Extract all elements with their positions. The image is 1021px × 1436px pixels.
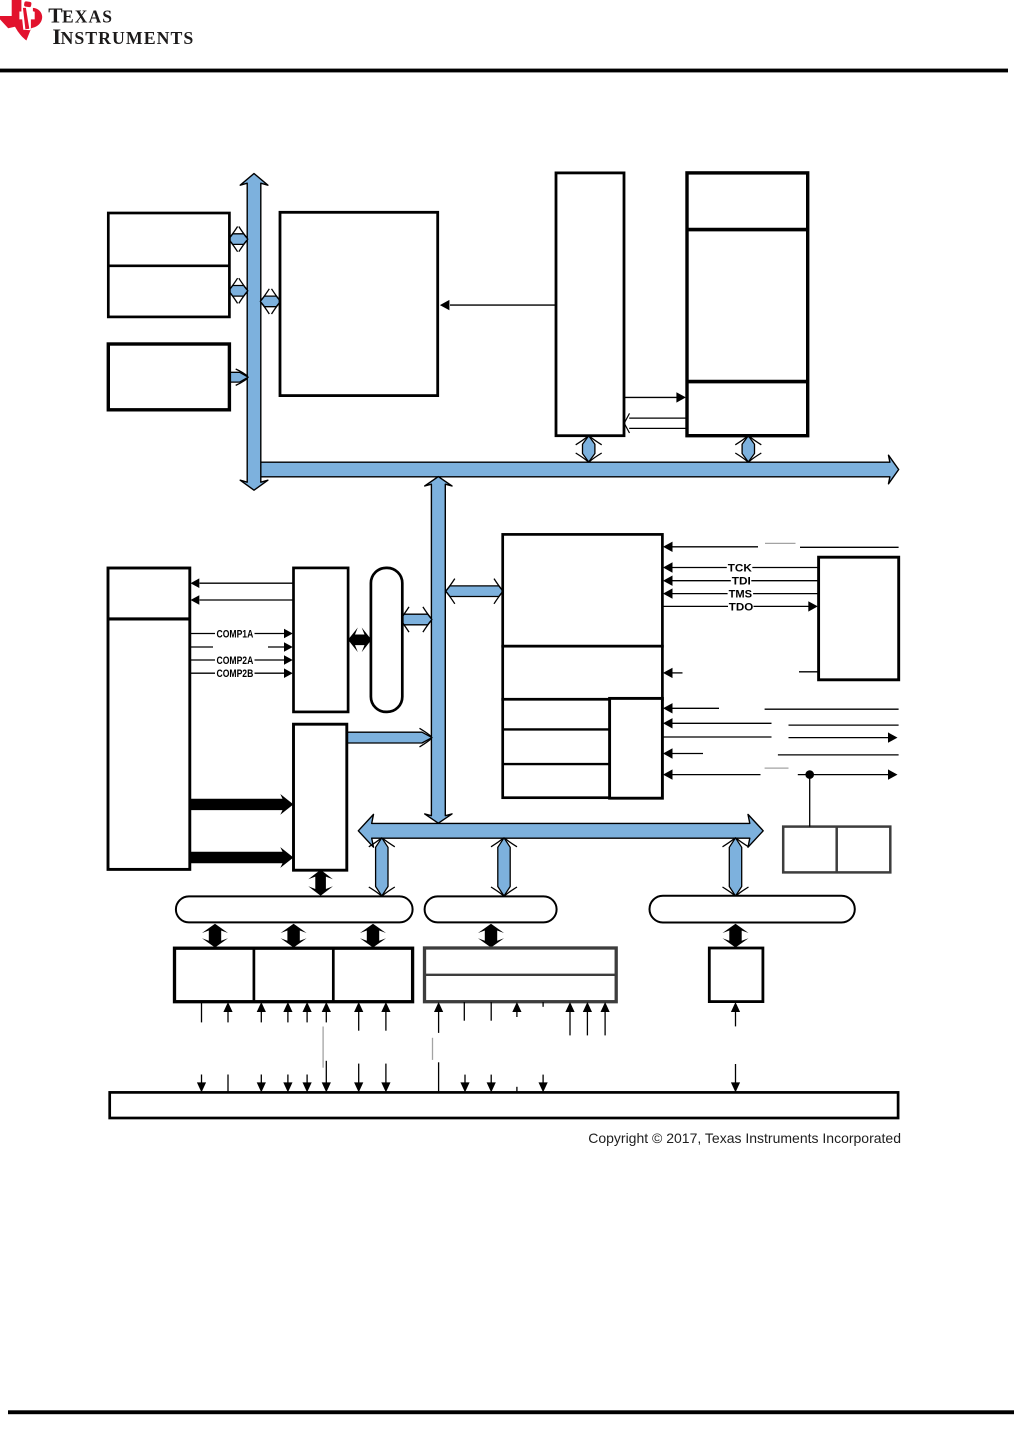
svg-text:NSTRUMENTS: NSTRUMENTS [61,28,194,48]
svg-text:TDI: TDI [732,576,751,588]
svg-text:Copyright © 2017, Texas Instru: Copyright © 2017, Texas Instruments Inco… [588,1130,901,1146]
svg-text:EXAS: EXAS [62,7,112,27]
svg-text:TDO: TDO [729,601,754,613]
svg-text:COMP1A: COMP1A [217,629,254,641]
svg-text:COMP2B: COMP2B [217,668,254,680]
svg-text:TMS: TMS [729,589,753,601]
svg-text:COMP2A: COMP2A [217,655,254,667]
svg-text:TCK: TCK [728,563,752,575]
